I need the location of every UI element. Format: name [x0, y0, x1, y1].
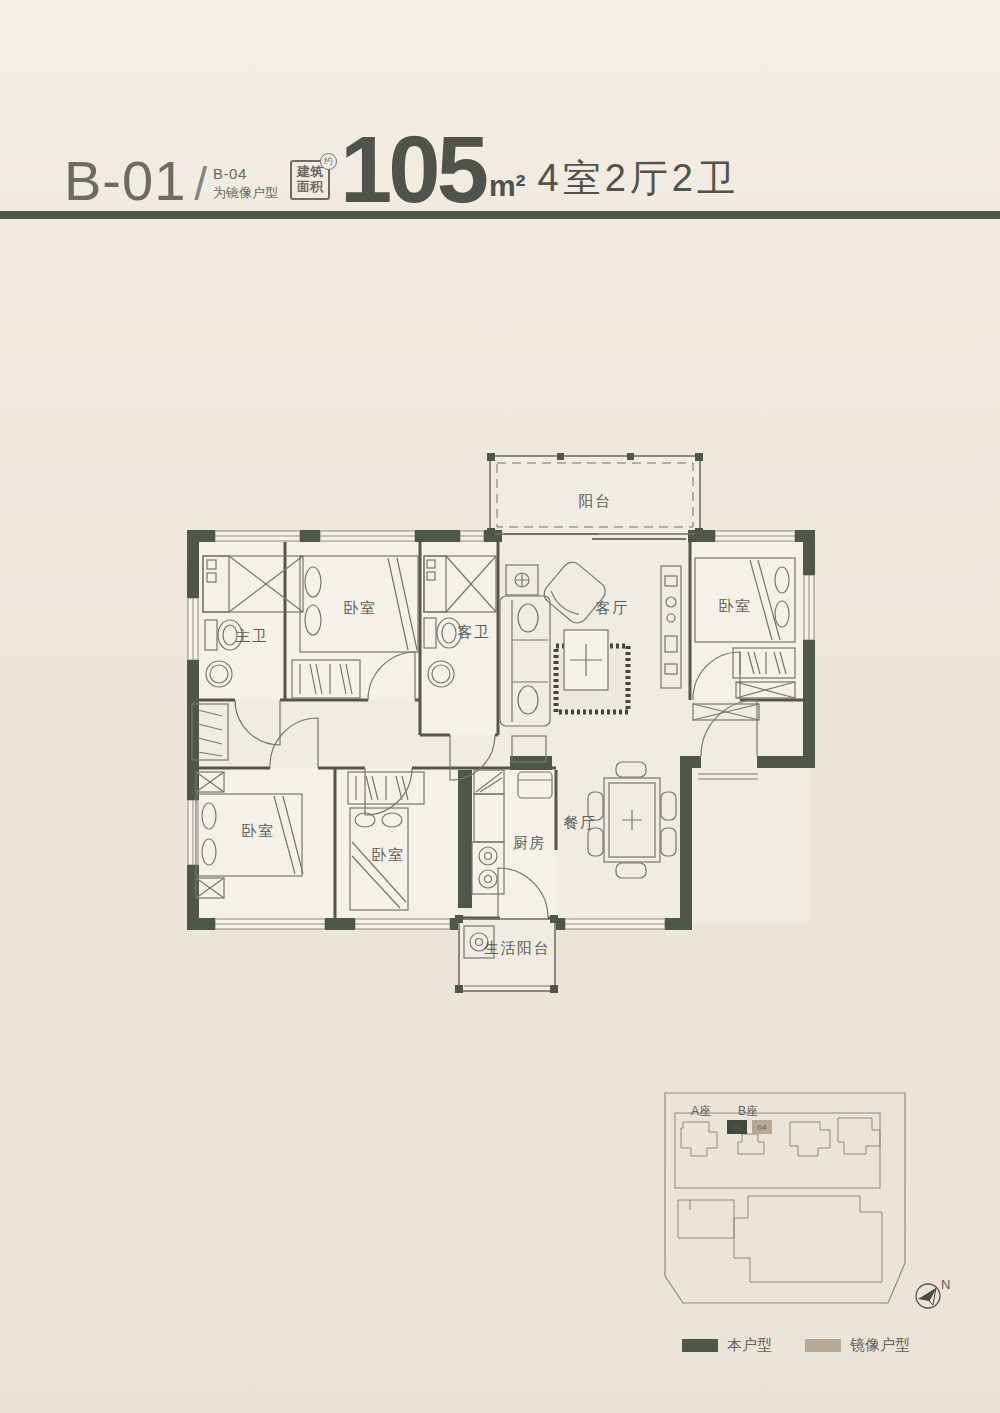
slash-separator: / — [194, 166, 207, 203]
north-label: N — [941, 1277, 950, 1292]
area-unit: m² — [489, 169, 526, 203]
mirror-unit-code: B-04 — [213, 165, 278, 182]
unit-01-label: 01 — [733, 1123, 742, 1132]
tower-a-label: A座 — [691, 1104, 711, 1118]
legend-this-unit-label: 本户型 — [727, 1336, 772, 1355]
approx-badge: 约 — [320, 153, 337, 170]
room-label-dining: 餐厅 — [564, 814, 597, 831]
room-label-kitchen: 厨房 — [513, 834, 546, 851]
legend-mirror-unit-swatch — [805, 1339, 841, 1352]
room-label-bedroom-lower-left: 卧室 — [242, 822, 275, 839]
area-box-line1: 建筑 — [297, 165, 323, 180]
room-label-bedroom-lower-middle: 卧室 — [372, 846, 405, 863]
site-plan: 01 04 A座 B座 N — [650, 1080, 970, 1320]
room-label-service-balcony: 生活阳台 — [484, 939, 550, 956]
area-box-line2: 面积 — [297, 180, 323, 195]
header: B-01 / B-04 为镜像户型 建筑 面积 约 105 m² 4室2厅2卫 — [64, 96, 739, 206]
room-label-bedroom-right: 卧室 — [719, 597, 752, 614]
area-value: 105 — [340, 133, 485, 206]
tower-b-label: B座 — [738, 1104, 758, 1118]
room-label-living: 客厅 — [596, 599, 629, 616]
room-label-bedroom-top: 卧室 — [344, 599, 377, 616]
floorplan-page: B-01 / B-04 为镜像户型 建筑 面积 约 105 m² 4室2厅2卫 — [0, 0, 1000, 1413]
site-buildings — [678, 1118, 882, 1282]
unit-04-label: 04 — [758, 1123, 767, 1132]
header-divider — [0, 211, 1000, 219]
layout-spec: 4室2厅2卫 — [538, 153, 739, 204]
site-boundary — [665, 1093, 905, 1303]
room-label-master-bath: 主卫 — [236, 627, 269, 644]
room-label-balcony: 阳台 — [579, 492, 612, 509]
legend-this-unit-swatch — [682, 1339, 718, 1352]
unit-code: B-01 — [64, 159, 186, 204]
mirror-note: 为镜像户型 — [213, 184, 278, 202]
legend-mirror-unit-label: 镜像户型 — [850, 1336, 910, 1355]
site-highlight-units: 01 04 — [727, 1120, 772, 1134]
floor-plan: 阳台 客厅 卧室 卧室 主卫 客卫 卧室 卧室 厨房 餐厅 生活阳台 — [175, 443, 835, 1008]
legend: 本户型 镜像户型 — [682, 1336, 910, 1355]
north-compass: N — [916, 1277, 950, 1308]
room-label-guest-bath: 客卫 — [458, 623, 491, 640]
built-area-box: 建筑 面积 约 — [290, 160, 330, 200]
mirror-note-block: B-04 为镜像户型 — [213, 165, 278, 202]
